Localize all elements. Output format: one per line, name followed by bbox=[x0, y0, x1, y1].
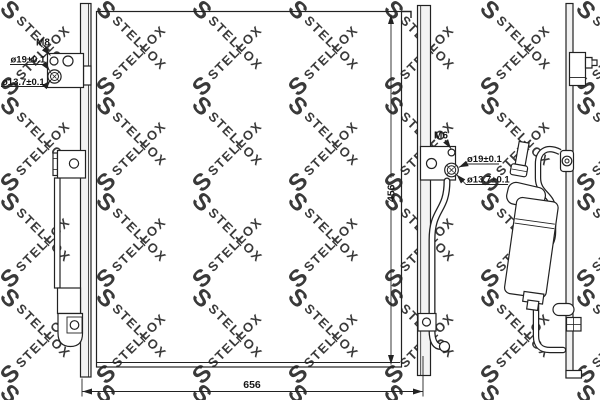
right-bottom-bracket bbox=[418, 314, 436, 332]
left-bottom-foot bbox=[58, 288, 83, 347]
mounting-block bbox=[567, 318, 582, 332]
left-thread-label: M8 bbox=[36, 38, 50, 49]
bracket-hole bbox=[69, 159, 78, 168]
right-thread-label: M6 bbox=[434, 131, 448, 142]
right-inner-diameter-label: ø13.7±0.1 bbox=[467, 175, 510, 186]
left-outer-diameter-label: ø19±0.1 bbox=[11, 55, 47, 66]
side-foot bbox=[566, 371, 582, 379]
right-threaded-hole bbox=[445, 163, 459, 177]
mid-tube-stub bbox=[553, 304, 574, 316]
right-outer-diameter-label: ø19±0.1 bbox=[467, 154, 503, 165]
bracket-hole bbox=[70, 321, 79, 330]
right-mounting-bracket bbox=[421, 147, 459, 181]
condenser-technical-drawing: STELLOX S STELLOX S bbox=[0, 0, 600, 400]
tube-end-fitting bbox=[440, 342, 450, 352]
m6-hole bbox=[448, 149, 455, 156]
height-dimension-label: 456 bbox=[386, 184, 398, 202]
left-inner-diameter-label: ø13.7±0.1 bbox=[2, 77, 45, 88]
left-bracket-arm bbox=[55, 178, 61, 288]
bracket-hole bbox=[63, 56, 73, 66]
width-dimension-label: 656 bbox=[243, 379, 261, 391]
m8-hole bbox=[50, 57, 58, 65]
bracket-hole bbox=[423, 318, 431, 326]
tube-flange-bolt bbox=[561, 151, 574, 172]
bracket-hole bbox=[427, 159, 437, 169]
